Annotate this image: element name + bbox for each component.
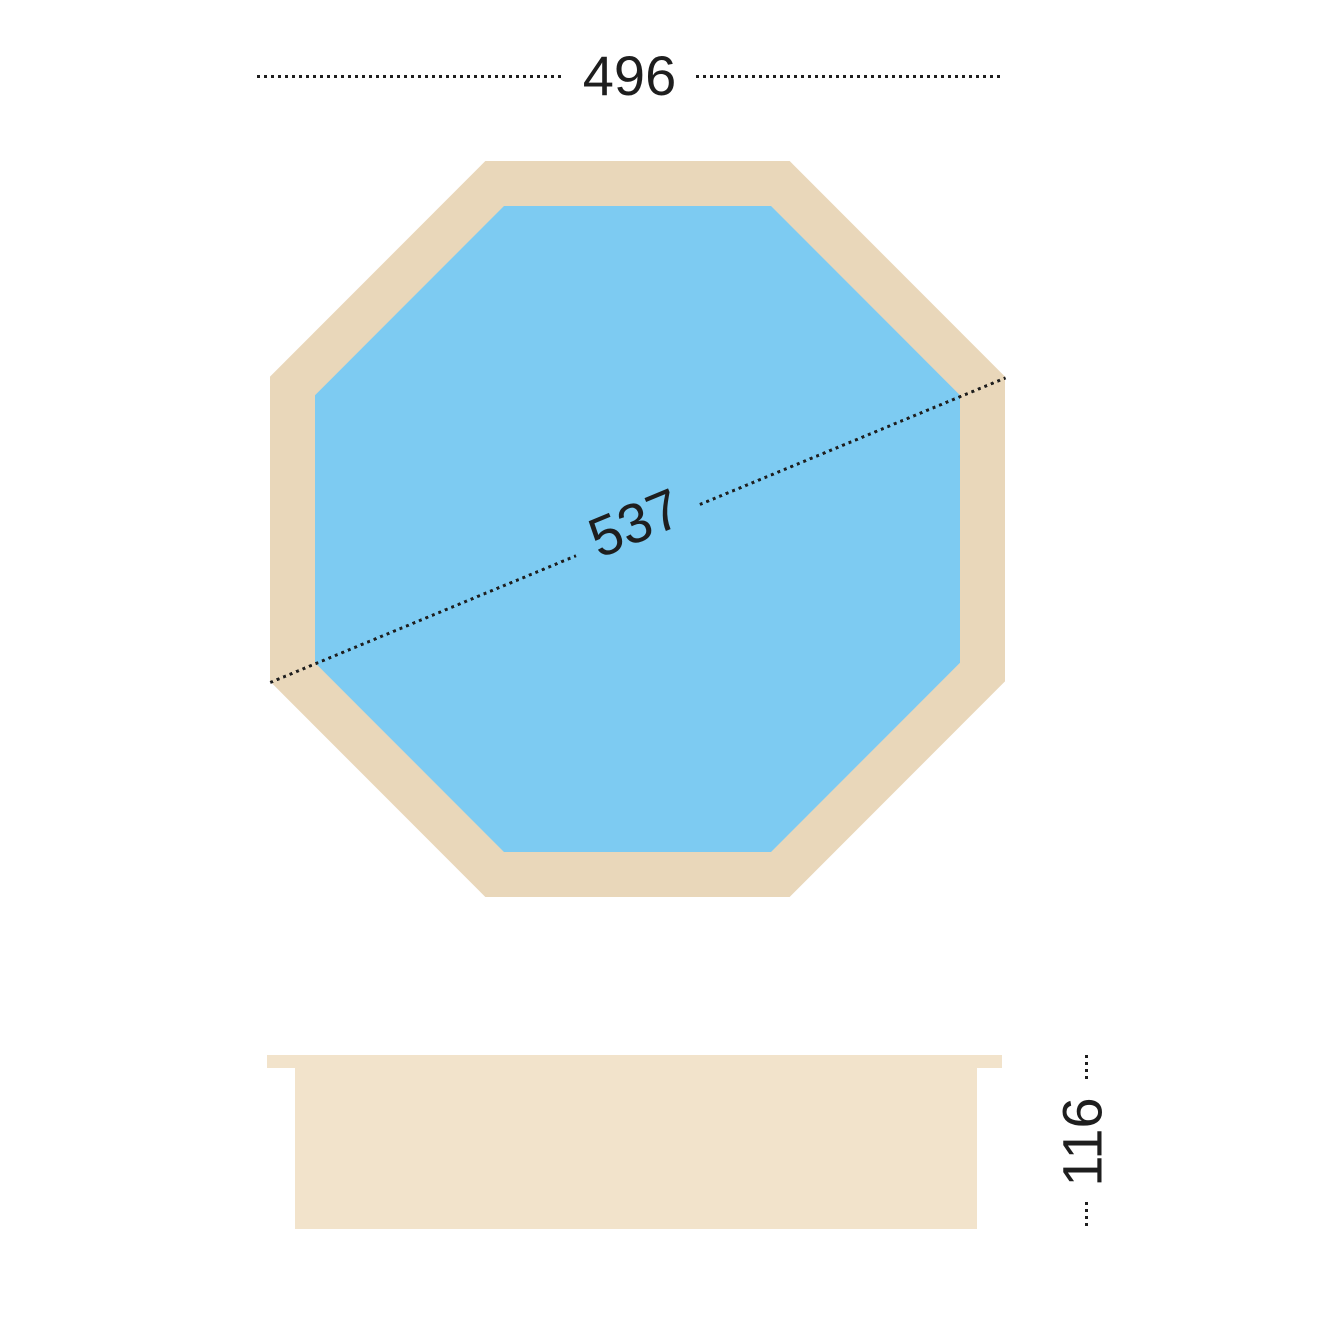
side-view-wall-body [295,1066,977,1229]
dimension-outer-width-value: 496 [583,48,676,104]
pool-dimension-diagram: 496 537 116 [0,0,1332,1332]
dimension-wall-height-labelbox: 116 [1063,1090,1109,1194]
dimension-wall-height-line-top [1085,1055,1088,1082]
dimension-wall-height: 116 [1063,1055,1109,1229]
dimension-wall-height-line-bottom [1085,1202,1088,1229]
dimension-wall-height-value: 116 [1055,1097,1111,1186]
dimension-outer-width: 496 [257,53,1002,99]
dimension-outer-width-line-left [257,75,563,78]
dimension-outer-width-line-right [696,75,1002,78]
